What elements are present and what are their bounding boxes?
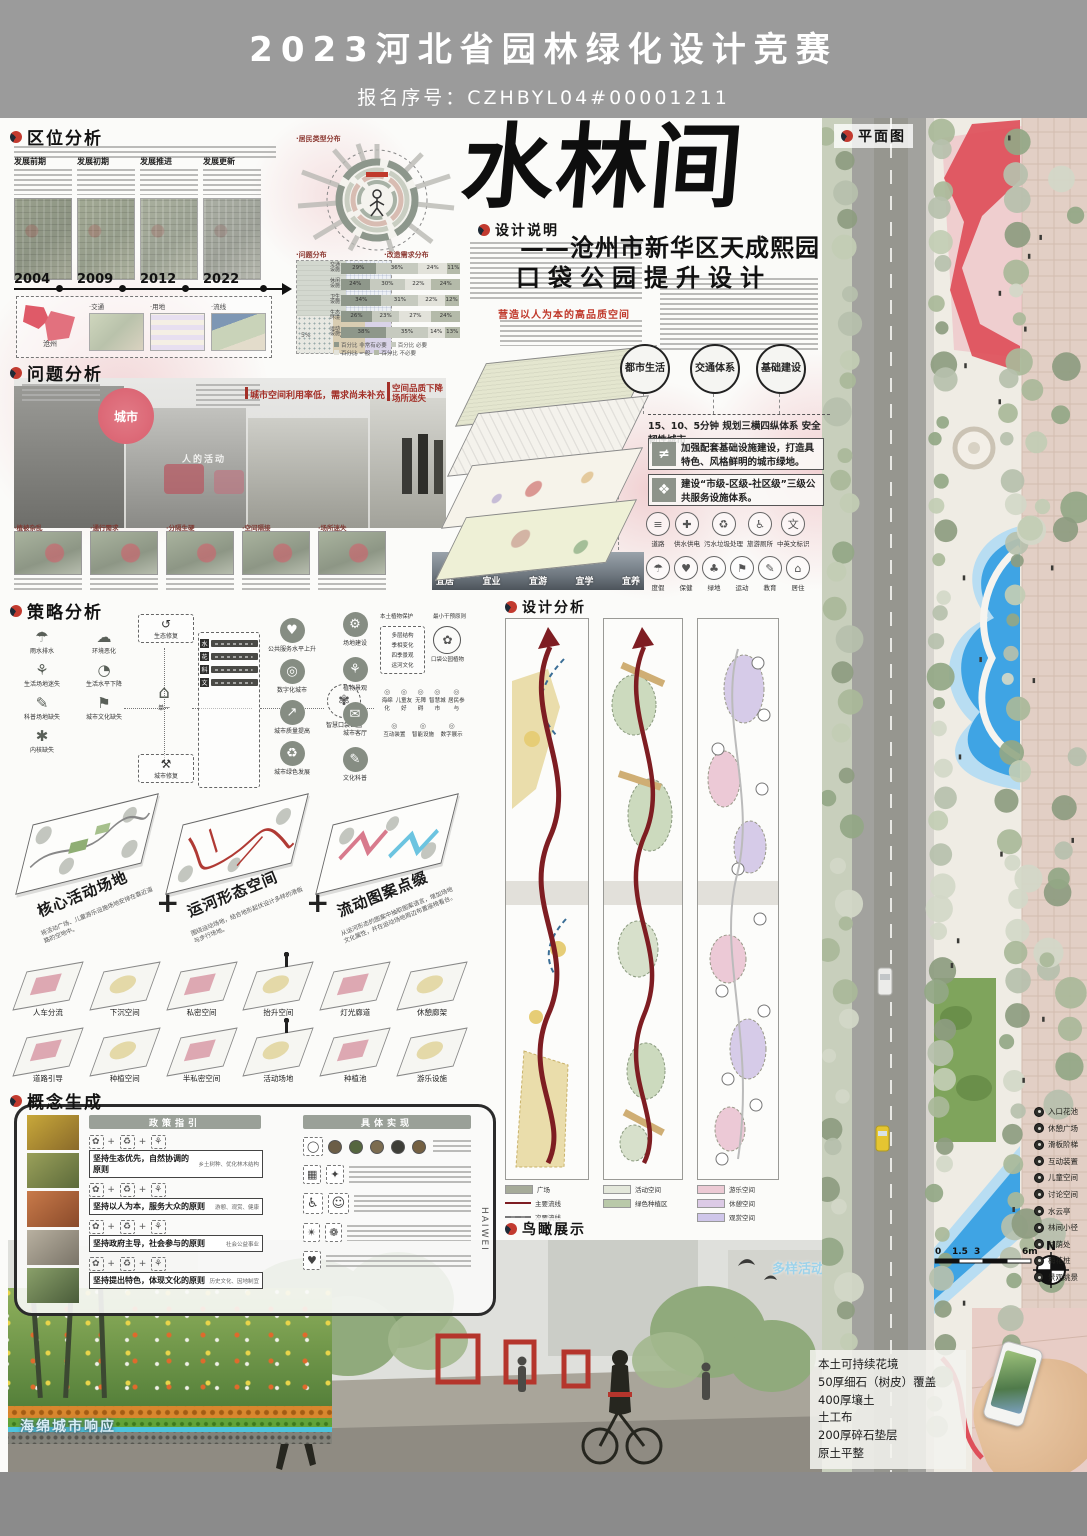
main-title: 水林间 — [458, 120, 826, 217]
plan-legend-item: 入口花池 — [1034, 1106, 1078, 1117]
design-tile: 种植池 — [321, 1028, 389, 1084]
plan-legend-item: 儿童空间 — [1034, 1172, 1078, 1183]
suitability-label: 宜业 — [482, 574, 500, 587]
facility-icon: 文 — [781, 512, 805, 536]
theme-chip: 文 — [200, 678, 258, 687]
timeline-axis — [14, 288, 282, 290]
facility-icon: ✚ — [675, 512, 699, 536]
sponge-city-label: 海绵城市响应 — [20, 1416, 116, 1436]
axon-card-1: 核心活动场地 将活动广场、儿童游乐设施场地安排在靠近道路的空地中。 — [22, 812, 162, 972]
photo-thumbnail — [318, 531, 386, 575]
facility-item: ♣ 绿地 — [702, 556, 726, 592]
poster-header: 2023河北省园林绿化设计竞赛 报名序号：CZHBYL04#00001211 — [0, 0, 1087, 118]
strategy-problem-node: ⚑ 城市文化缺失 — [76, 696, 132, 721]
demand-bar-row: 运动设施38%35%14%13% — [330, 326, 460, 338]
strategy-node: ✎ 文化科普 — [332, 747, 378, 782]
single-core-node: ⌂单一 — [142, 684, 186, 712]
legend-group-2: 活动空间 绿色种植区 — [603, 1184, 695, 1212]
construction-layers: 本土可持续花境 50厚细石（树皮）覆盖 400厚壤土 土工布 200厚碎石垫层 … — [810, 1350, 966, 1469]
design-tiles-row1: 人车分流 下沉空间 私密空间 抬升空间 灯光廊道 休憩廊架 — [14, 962, 466, 1018]
timeline-arrow-icon — [282, 283, 292, 295]
strategy-problem-node: ✱ 内核缺失 — [14, 729, 70, 754]
problem-photos: ·植被杂乱 ·通行需求 ·分隔生硬 ·空间隔接 ·场所迷失 — [14, 522, 446, 590]
strategy-node: ↗ 城市质量提高 — [264, 700, 320, 735]
construction-layer-line: 本土可持续花境 — [818, 1356, 958, 1374]
facility-icon: ✎ — [758, 556, 782, 580]
legend-marker-icon — [1034, 1156, 1044, 1166]
legend-marker-icon — [1034, 1239, 1044, 1249]
strategy-problem-node: ✎ 科普场地缺失 — [14, 696, 70, 721]
culture-items: ◎互动装置 ◎智能设施 ◎数字展示 — [380, 722, 466, 738]
strategy-details: 本土植物保护 最小干预原则 多层结构 季相变化 四季景观 运河文化 ✿ 口袋公园… — [380, 612, 466, 738]
strategy-node: ✉ 城市客厅 — [332, 702, 378, 737]
implementation-header: 具体实现 — [303, 1115, 471, 1129]
legend-item: 广场 — [505, 1184, 597, 1194]
strategy-node: ♥ 公共服务水平上升 — [264, 618, 320, 653]
plan-legend-item: 互动装置 — [1034, 1156, 1078, 1167]
poster-footer — [0, 1472, 1087, 1536]
concept-frame: 政策指引 具体实现 ✿ + ♻ + ⚘ 坚持生态优先，自然协调的原则乡土树种、优… — [14, 1104, 496, 1316]
plan-legend: 入口花池 休憩广场 滑板阶梯 互动装置 儿童空间 讨论空间 水云亭 林间小径 林… — [1034, 1106, 1078, 1289]
city-repair-box: ⚒城市修复 — [138, 754, 194, 783]
design-tile: 种植空间 — [91, 1028, 159, 1084]
legend-marker-icon — [1034, 1189, 1044, 1199]
strategy-outcomes: ♥ 公共服务水平上升 ◎ 数字化城市 ↗ 城市质量提高 ♻ 城市绿色发展 — [264, 618, 320, 782]
plan-legend-item: 滑板阶梯 — [1034, 1139, 1078, 1150]
section-dot-icon — [10, 131, 22, 143]
plant-result-node: ✿ 口袋公园植物 — [429, 626, 466, 674]
analysis-strip-circulation — [505, 618, 589, 1180]
phase-column: 发展推进 — [140, 156, 198, 280]
poster-title: 2023河北省园林绿化设计竞赛 — [0, 0, 1087, 71]
strategy-diagram: ☂ 雨水排水 ☁ 环境恶化 ⚘ 生活场地迷失 ◔ 生活水平下降 ✎ 科普场地缺失… — [14, 612, 466, 810]
development-phases: 发展前期 发展初期 发展推进 发展更新 — [14, 156, 272, 280]
plan-legend-item: 林荫处 — [1034, 1239, 1078, 1250]
strategy-problem-node: ◔ 生活水平下降 — [76, 663, 132, 688]
demand-chart-title: ·改造需求分布 — [384, 250, 429, 260]
strategy-mini-item: ◎居民参与 — [447, 688, 466, 712]
demand-stacked-bar-chart: 交通设施29%36%24%11%休闲设施24%30%22%24%卫生设施34%3… — [330, 262, 460, 359]
location-summary-box: 沧州 ·交通 ·用地 ·流线 — [16, 296, 272, 358]
facility-item: ✎ 教育 — [758, 556, 782, 592]
competition-poster: 2023河北省园林绿化设计竞赛 报名序号：CZHBYL04#00001211 区… — [0, 0, 1087, 1536]
svg-text:3: 3 — [974, 1247, 980, 1257]
demand-bar-row: 交通设施29%36%24%11% — [330, 262, 460, 274]
legend-marker-icon — [1034, 1140, 1044, 1150]
design-tile: 半私密空间 — [168, 1028, 236, 1084]
facility-item: 文 中英文标识 — [777, 512, 810, 548]
design-tile: 人车分流 — [14, 962, 82, 1018]
legend-marker-icon — [1034, 1256, 1044, 1266]
design-notes-col1b — [500, 320, 642, 346]
analysis-strip-spaces — [697, 618, 779, 1180]
location-sub-diagram: ·交通 — [89, 301, 144, 351]
timeline-year: 2009 — [77, 272, 135, 287]
infrastructure-box: ≠ 加强配套基础设施建设，打造具特色、风格鲜明的城市绿地。 — [648, 438, 824, 470]
strategy-mini-item: ◎智能设施 — [412, 722, 434, 738]
facility-item: ⌂ 居住 — [786, 556, 810, 592]
legend-marker-icon — [1034, 1272, 1044, 1282]
problem-photo: ·植被杂乱 — [14, 522, 82, 590]
facility-item: ⚑ 运动 — [730, 556, 754, 592]
theme-chips: 水 花 科 文 — [198, 632, 260, 788]
satellite-image — [140, 198, 198, 280]
facility-item: ☂ 度假 — [646, 556, 670, 592]
satellite-image — [203, 198, 261, 280]
design-notes-highlight: 营造以人为本的高品质空间 — [498, 306, 630, 321]
registration-number: 报名序号：CZHBYL04#00001211 — [0, 83, 1087, 110]
phase-column: 发展更新 — [203, 156, 261, 280]
plan-legend-item: 水云亭 — [1034, 1206, 1078, 1217]
annotation-bracket — [387, 382, 390, 401]
design-tiles-row2: 道路引导 种植空间 半私密空间 活动场地 种植池 游乐设施 — [14, 1028, 466, 1084]
service-system-box: ❖ 建设“市级-区级-社区级”三级公共服务设施体系。 — [648, 474, 824, 506]
design-tile: 下沉空间 — [91, 962, 159, 1018]
design-tile: 私密空间 — [168, 962, 236, 1018]
timeline-year: 2004 — [14, 272, 72, 287]
facility-icon: ⚑ — [730, 556, 754, 580]
policy-header: 政策指引 — [89, 1115, 261, 1129]
strategy-node: ⚙ 场地建设 — [332, 612, 378, 647]
weave-icon: ❖ — [652, 478, 676, 502]
legend-marker-icon — [1034, 1173, 1044, 1183]
location-sub-diagram: ·用地 — [150, 301, 205, 351]
analysis-strip-planting — [603, 618, 683, 1180]
problem-annotation-2b: 场所迷失 — [392, 392, 426, 404]
circle-infrastructure: 基础建设 — [756, 344, 806, 394]
demand-bar-row: 生态环境26%23%27%24% — [330, 310, 460, 322]
section-dot-icon — [505, 1223, 517, 1235]
strategy-mini-item: ◎无障碍 — [413, 688, 427, 712]
section-masterplan: 平面图 — [834, 124, 913, 148]
hall-items: ◎海绵化 ◎儿童友好 ◎无障碍 ◎智慧城市 ◎居民参与 — [380, 688, 466, 712]
phase-column: 发展前期 — [14, 156, 72, 280]
section-birdseye: 鸟瞰展示 — [500, 1218, 591, 1240]
facility-item: ♥ 保健 — [674, 556, 698, 592]
facility-item: ♿ 旅游厕所 — [747, 512, 773, 548]
satellite-image — [77, 198, 135, 280]
legend-item: 观赏空间 — [697, 1212, 789, 1222]
svg-text:0: 0 — [935, 1247, 941, 1257]
facility-icon: ⌂ — [786, 556, 810, 580]
timeline-year: 2012 — [140, 272, 198, 287]
plan-legend-item: 林间小径 — [1034, 1222, 1078, 1233]
phase-column: 发展初期 — [77, 156, 135, 280]
strategy-mini-item: ◎互动装置 — [383, 722, 405, 738]
strategy-problems: ☂ 雨水排水 ☁ 环境恶化 ⚘ 生活场地迷失 ◔ 生活水平下降 ✎ 科普场地缺失… — [14, 630, 132, 754]
subtitle-line2: 口袋公园提升设计 — [468, 258, 820, 293]
facility-item: ≡ 道路 — [646, 512, 670, 548]
plant-items-box: 多层结构 季相变化 四季景观 运河文化 — [380, 626, 425, 674]
design-tile: 休憩廊架 — [398, 962, 466, 1018]
section-design-analysis: 设计分析 — [500, 596, 591, 618]
suitability-label: 宜学 — [575, 574, 593, 587]
strategy-mini-item: ◎智慧城市 — [428, 688, 447, 712]
resident-radial-chart — [292, 142, 462, 254]
strategy-mini-item: ◎海绵化 — [380, 688, 394, 712]
problem-photo: ·通行需求 — [90, 522, 158, 590]
strategy-problem-node: ⚘ 生活场地迷失 — [14, 663, 70, 688]
demand-chart-legend: 百分比 非常有必要百分比 必要百分比 一般百分比 不必要 — [330, 342, 460, 359]
legend-marker-icon — [1034, 1206, 1044, 1216]
axon-card-2: 运河形态空间 围绕运动场地，结合地形起伏设计多样的滑板与步行场地。 — [172, 812, 312, 972]
problem-photo: ·空间隔接 — [242, 522, 310, 590]
cangzhou-map: 沧州 — [21, 303, 83, 349]
facility-icon: ☂ — [646, 556, 670, 580]
section-dot-icon — [841, 130, 853, 142]
problem-note-1 — [22, 384, 100, 404]
strategy-categories: ⚙ 场地建设 ⚘ 植物景观 ✉ 城市客厅 ✎ 文化科普 — [332, 612, 378, 788]
design-tile: 道路引导 — [14, 1028, 82, 1084]
demand-bar-row: 卫生设施34%31%22%12% — [330, 294, 460, 306]
construction-layer-line: 200厚碎石垫层 — [818, 1427, 958, 1445]
treemap-pct: 5% — [301, 332, 311, 339]
service-row: ☂ 度假 ♥ 保健 ♣ 绿地 ⚑ 运动 ✎ 教育 ⌂ 居住 — [646, 556, 810, 592]
legend-item: 休憩空间 — [697, 1198, 789, 1208]
legend-item: 游乐空间 — [697, 1184, 789, 1194]
policy-principle: ✿ + ♻ + ⚘ 坚持生态优先，自然协调的原则乡土树种、优化林木结构 — [89, 1135, 263, 1178]
section-design-notes: 设计说明 — [478, 220, 559, 240]
axon-card-3: 流动图案点缀 从运河形态的图案中抽取图案语言，增加场地文化属性，并在运动场地周边… — [322, 812, 462, 972]
legend-marker-icon — [1034, 1123, 1044, 1133]
strategy-problem-node: ☁ 环境恶化 — [76, 630, 132, 655]
facility-icon: ♿ — [748, 512, 772, 536]
timeline-year: 2022 — [203, 272, 261, 287]
problem-photo: ·分隔生硬 — [166, 522, 234, 590]
construction-layer-line: 原土平整 — [818, 1445, 958, 1463]
problem-photo: ·场所迷失 — [318, 522, 386, 590]
plan-legend-item: 休憩广场 — [1034, 1123, 1078, 1134]
section-dot-icon — [10, 605, 22, 617]
strategy-node: ◎ 数字化城市 — [264, 659, 320, 694]
photo-thumbnail — [166, 531, 234, 575]
plan-legend-item: 梅花桩 — [1034, 1255, 1078, 1266]
policy-principles: ✿ + ♻ + ⚘ 坚持生态优先，自然协调的原则乡土树种、优化林木结构 ✿ + … — [89, 1135, 263, 1294]
strategy-node: ⚘ 植物景观 — [332, 657, 378, 692]
plan-legend-item: 景观眺景 — [1034, 1272, 1078, 1283]
strategy-mini-item: ◎数字展示 — [441, 722, 463, 738]
design-tile: 灯光廊道 — [321, 962, 389, 1018]
facility-icon: ≡ — [646, 512, 670, 536]
satellite-image — [14, 198, 72, 280]
facility-icon: ♻ — [712, 512, 736, 536]
demand-bar-row: 休闲设施24%30%22%24% — [330, 278, 460, 290]
suitability-label: 宜养 — [622, 574, 640, 587]
section-problem-analysis: 问题分析 — [10, 360, 103, 385]
facility-row: ≡ 道路 ✚ 供水供电 ♻ 污水垃圾处理 ♿ 旅游厕所 文 中英文标识 — [646, 512, 810, 548]
construction-layer-line: 400厚壤土 — [818, 1392, 958, 1410]
legend-marker-icon — [1034, 1223, 1044, 1233]
photo-thumbnail — [242, 531, 310, 575]
theme-chip: 科 — [200, 665, 258, 674]
problem-annotation-1: 城市空间利用率低，需求尚未补充 — [250, 388, 385, 401]
strategy-node: ♻ 城市绿色发展 — [264, 741, 320, 776]
section-dot-icon — [10, 367, 22, 379]
design-tile: 游乐设施 — [398, 1028, 466, 1084]
section-strategy-analysis: 策略分析 — [10, 598, 103, 623]
circle-urban-life: 都市生活 — [620, 344, 670, 394]
legend-group-3: 游乐空间 休憩空间 观赏空间 — [697, 1184, 789, 1226]
policy-principle: ✿ + ♻ + ⚘ 坚持提出特色，体现文化的原则历史文化、因地制宜 — [89, 1257, 263, 1289]
brand-haiwei: HAIWEI — [479, 1207, 489, 1252]
facility-icon: ♥ — [674, 556, 698, 580]
svg-text:1.5: 1.5 — [952, 1247, 968, 1257]
annotation-bracket — [245, 387, 248, 399]
plan-legend-item: 讨论空间 — [1034, 1189, 1078, 1200]
strategy-mini-item: ◎儿童友好 — [394, 688, 413, 712]
section-dot-icon — [10, 1095, 22, 1107]
policy-principle: ✿ + ♻ + ⚘ 坚持政府主导，社会参与的原则社会公益事业 — [89, 1220, 263, 1252]
legend-marker-icon — [1034, 1107, 1044, 1117]
people-activity-label: 人的活动 — [182, 452, 226, 465]
photo-thumbnail — [14, 531, 82, 575]
legend-item: 活动空间 — [603, 1184, 695, 1194]
section-location-analysis: 区位分析 — [10, 124, 103, 149]
legend-item: 绿色种植区 — [603, 1198, 695, 1208]
eco-repair-box: ↺生态修复 — [138, 614, 194, 643]
photo-thumbnail — [90, 531, 158, 575]
location-sub-diagrams: ·交通 ·用地 ·流线 — [89, 301, 267, 351]
construction-layer-line: 土工布 — [818, 1409, 958, 1427]
city-bubble: 城市 — [98, 388, 154, 444]
timeline-years: 2004 2009 2012 2022 — [14, 272, 272, 287]
slider-icon: ≠ — [652, 442, 676, 466]
facility-icon: ♣ — [702, 556, 726, 580]
construction-layer-line: 50厚细石（树皮）覆盖 — [818, 1374, 958, 1392]
hand-with-phone — [948, 1326, 1087, 1472]
concept-photo-strip — [27, 1115, 79, 1303]
circle-traffic-system: 交通体系 — [690, 344, 740, 394]
facility-item: ✚ 供水供电 — [674, 512, 700, 548]
policy-principle: ✿ + ♻ + ⚘ 坚持以人为本，服务大众的原则游憩、观赏、健康 — [89, 1183, 263, 1215]
problem-chart-title: ·问题分布 — [296, 250, 327, 260]
design-tile: 活动场地 — [244, 1028, 312, 1084]
suitability-label: 宜游 — [529, 574, 547, 587]
strategy-problem-node: ☂ 雨水排水 — [14, 630, 70, 655]
location-sub-diagram: ·流线 — [211, 301, 266, 351]
legend-item: 主要流线 — [505, 1198, 597, 1208]
theme-chip: 水 — [200, 639, 258, 648]
facility-item: ♻ 污水垃圾处理 — [704, 512, 743, 548]
design-tile: 抬升空间 — [244, 962, 312, 1018]
section-dot-icon — [505, 601, 517, 613]
theme-chip: 花 — [200, 652, 258, 661]
section-dot-icon — [478, 224, 490, 236]
section-concept-generation: 概念生成 — [10, 1088, 103, 1113]
implementation-rows: ◯ ▦✦ ♿☺ ✴❁ ♥ — [303, 1137, 471, 1279]
